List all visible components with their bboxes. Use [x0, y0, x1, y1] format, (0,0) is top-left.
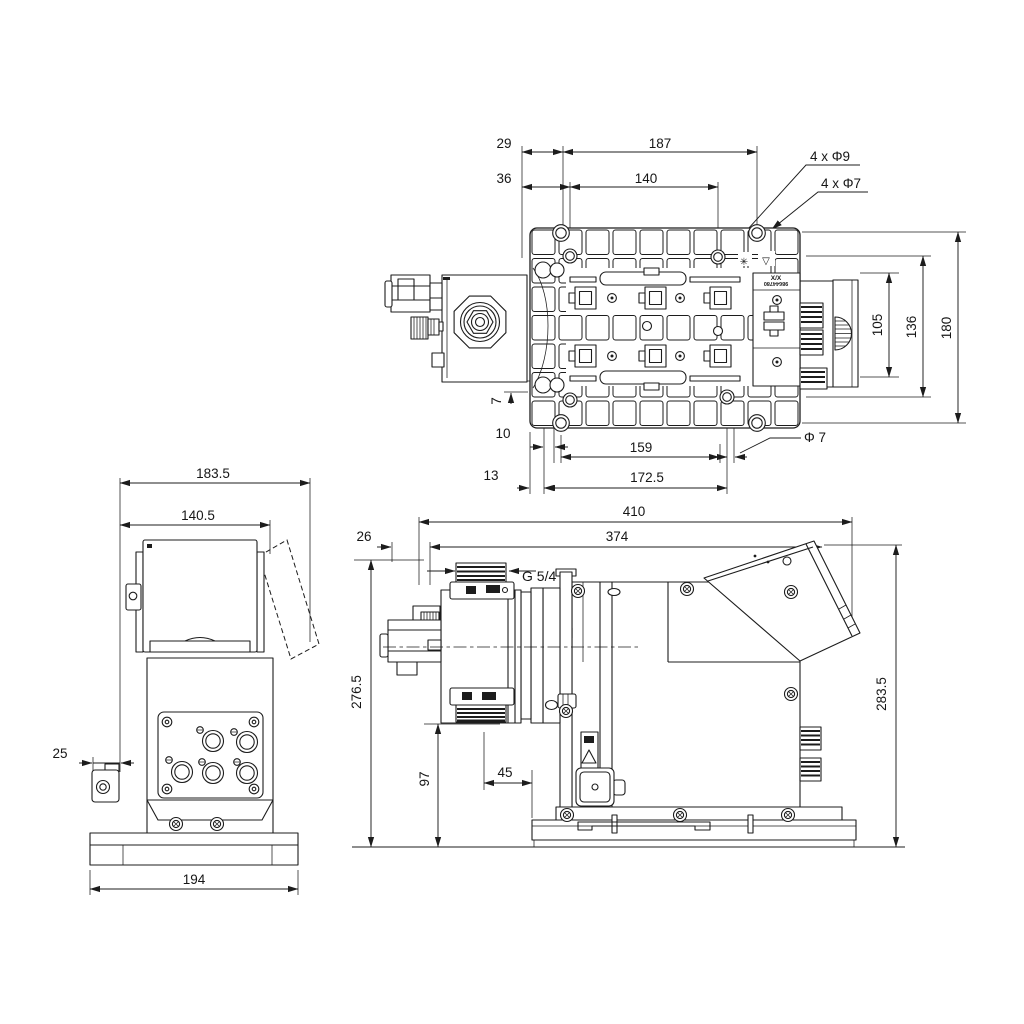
- dim-dia7: Φ 7: [804, 430, 826, 445]
- dim-25: 25: [52, 746, 67, 761]
- dim-140_5: 140.5: [181, 508, 215, 523]
- side-base: [352, 807, 905, 847]
- control-unit-top: [800, 280, 858, 389]
- dim-7: 7: [489, 397, 504, 405]
- cable-glands-top: [800, 303, 827, 389]
- nameplate-serial: 98644780: [764, 280, 788, 286]
- dim-140: 140: [635, 171, 658, 186]
- side-view: 410 374 26 G 5/4'' 276.5 97 45 283.5: [349, 504, 905, 847]
- dim-45: 45: [497, 765, 512, 780]
- dim-283_5: 283.5: [874, 677, 889, 711]
- dim-29: 29: [496, 136, 511, 151]
- dim-410: 410: [623, 504, 646, 519]
- dim-159: 159: [630, 440, 653, 455]
- dosing-head-top: [385, 275, 527, 382]
- pump-front: [90, 540, 319, 865]
- dim-172_5: 172.5: [630, 470, 664, 485]
- vent-valve-side: [380, 606, 441, 675]
- triangle-symbol-icon: ▽: [762, 256, 770, 267]
- pump-side: [352, 541, 905, 847]
- dim-13: 13: [483, 468, 498, 483]
- mounting-ear: [92, 764, 119, 802]
- vent-valve-top: [385, 275, 444, 367]
- top-view: 29 187 36 140 4 x Φ9 4 x Φ7 105 136 180 …: [385, 136, 966, 494]
- callout-4xphi9: 4 x Φ9: [810, 149, 850, 164]
- dim-180: 180: [939, 317, 954, 340]
- mounting-plate: X/X 98644780 ✳ ▽: [530, 225, 800, 432]
- dim-36: 36: [496, 171, 511, 186]
- dim-26: 26: [356, 529, 371, 544]
- front-view: 183.5 140.5 25 194: [52, 466, 319, 895]
- cable-glands-side: [800, 727, 821, 781]
- dim-136: 136: [904, 316, 919, 339]
- front-base: [90, 833, 298, 865]
- callout-4xphi7: 4 x Φ7: [821, 176, 861, 191]
- dim-97: 97: [417, 771, 432, 786]
- dim-10: 10: [495, 426, 510, 441]
- dim-105: 105: [870, 314, 885, 337]
- frost-symbol-icon: ✳: [740, 257, 748, 268]
- knurled-knob-top: [411, 317, 443, 339]
- dim-183_5: 183.5: [196, 466, 230, 481]
- technical-drawing-page: 29 187 36 140 4 x Φ9 4 x Φ7 105 136 180 …: [0, 0, 1024, 1024]
- dim-187: 187: [649, 136, 672, 151]
- discharge-valve: [450, 563, 514, 599]
- connection-panel: [158, 712, 263, 798]
- suction-valve: [450, 688, 514, 722]
- dim-374: 374: [606, 529, 629, 544]
- pump-dimensional-drawing: 29 187 36 140 4 x Φ9 4 x Φ7 105 136 180 …: [0, 0, 1024, 1024]
- dim-276_5: 276.5: [349, 675, 364, 709]
- dim-194: 194: [183, 872, 206, 887]
- head-flange: [454, 296, 506, 348]
